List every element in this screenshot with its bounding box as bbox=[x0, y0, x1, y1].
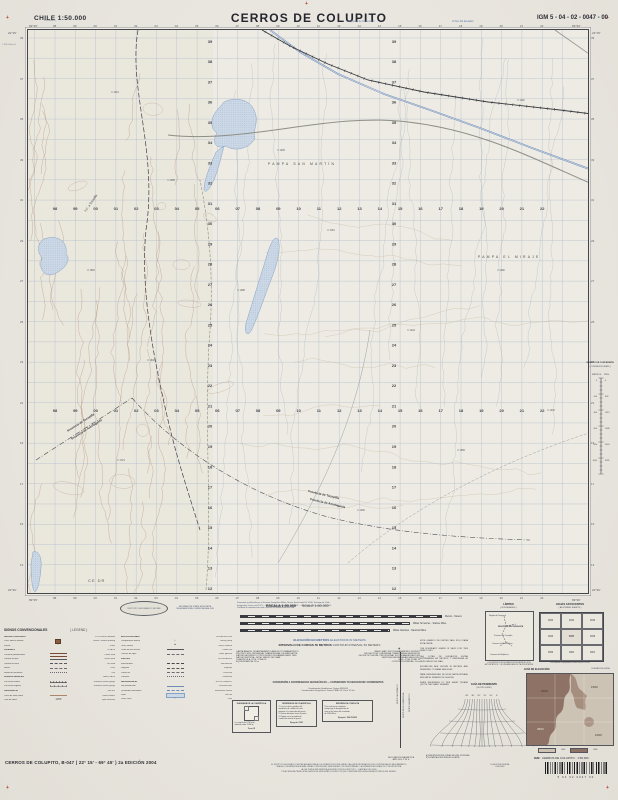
easting-label: 99 bbox=[73, 206, 78, 211]
datum-spanish: CARTA BÁSICA: LEVANTAMIENTO AEROFOTOGRAM… bbox=[236, 651, 325, 663]
northing-label: 34 bbox=[208, 140, 213, 145]
river-symbol bbox=[167, 686, 184, 687]
boundaries-note: LOS LÍMITES QUE FIGURAN EN ESTA CARTA NO… bbox=[483, 662, 535, 666]
margin-northing: 37 bbox=[20, 77, 23, 81]
igm-catalog-line: IGM · CERROS DE COLUPITO · 1:50.000 bbox=[534, 756, 589, 760]
legend-symbol bbox=[48, 695, 68, 696]
adjoining-sheets-grid: 003300340035004600470048005900600061 bbox=[539, 612, 604, 662]
legend-symbol bbox=[48, 681, 68, 683]
barcode-digits: 5 04 02 0047 00 bbox=[545, 776, 607, 779]
margin-easting: 17 bbox=[439, 24, 442, 28]
legend-es-label: Senda de herradura bbox=[4, 672, 48, 674]
legend-symbol: ·1250 bbox=[48, 699, 68, 702]
easting-label: 13 bbox=[357, 206, 362, 211]
margin-easting: 19 bbox=[479, 596, 482, 600]
legend-symbol bbox=[48, 663, 68, 664]
registration-mark: + bbox=[305, 2, 308, 7]
box3-example: Ejemplo: 19K 053653 bbox=[325, 717, 371, 719]
margin-easting: 04 bbox=[175, 596, 178, 600]
margin-easting: 21 bbox=[520, 24, 523, 28]
legend-en-label: Index contour bbox=[68, 695, 115, 697]
margin-easting: 13 bbox=[358, 596, 361, 600]
boundaries-title: LÍMITES bbox=[484, 603, 533, 606]
margin-easting: 06 bbox=[215, 596, 218, 600]
legend-es-label: Vía férrea normal bbox=[4, 681, 48, 683]
margin-easting: 19 bbox=[479, 24, 482, 28]
easting-label: 10 bbox=[296, 408, 301, 413]
margin-northing: 39 bbox=[591, 36, 594, 40]
legend-title: SIGNOS CONVENCIONALES ( LEGEND ) bbox=[4, 628, 232, 632]
easting-label: 00 bbox=[93, 206, 98, 211]
boundary-label: REGIÓN DE ANTOFAGASTA bbox=[498, 626, 523, 628]
legend-en-label: Provincial bbox=[185, 672, 232, 674]
legend-symbol bbox=[48, 668, 68, 669]
corner-lat-br: 22°30' bbox=[592, 588, 600, 592]
adjoining-sheet-cell: 0034 bbox=[561, 613, 582, 629]
margin-easting: 11 bbox=[317, 596, 320, 600]
registration-mark: + bbox=[6, 786, 9, 791]
northing-label: 38 bbox=[392, 59, 397, 64]
elevation-note: ELEVACIÓN EN METROS ELEVATIONS IN METERS bbox=[237, 638, 422, 642]
northing-label: 15 bbox=[392, 525, 397, 530]
ruler-feet-label: 656 bbox=[605, 396, 609, 398]
ruler-meter-label: 400 bbox=[594, 412, 598, 414]
slope-guide-title: GUÍA DE PENDIENTE bbox=[440, 683, 528, 686]
margin-easting: 98 bbox=[53, 24, 56, 28]
northing-label: 30 bbox=[208, 221, 213, 226]
legend-symbol bbox=[165, 676, 185, 677]
elev-swatch-low bbox=[538, 748, 556, 753]
legend-en-label: International bbox=[185, 663, 232, 665]
scale-en: SCALE 1:50.000 bbox=[302, 604, 329, 608]
legend-en-label: ROADS bbox=[68, 649, 115, 651]
easting-label: 20 bbox=[499, 206, 504, 211]
margin-easting: 04 bbox=[175, 24, 178, 28]
northing-label: 27 bbox=[208, 282, 213, 287]
legend-symbol bbox=[48, 685, 68, 687]
northing-label: 20 bbox=[392, 424, 397, 429]
northing-label: 39 bbox=[392, 39, 397, 44]
margin-easting: 07 bbox=[236, 24, 239, 28]
legend-en-label: Track bbox=[68, 667, 115, 669]
b2-symbol bbox=[167, 668, 184, 669]
margin-northing: 21 bbox=[591, 401, 594, 405]
margin-easting: 11 bbox=[317, 24, 320, 28]
igm-logo-text: INSTITUTO GEOGRÁFICO MILITAR bbox=[128, 608, 161, 610]
legend-symbol bbox=[165, 686, 185, 687]
easting-label: 03 bbox=[154, 408, 159, 413]
margin-easting: 21 bbox=[520, 596, 523, 600]
adjoining-sheets-note: Los números corresponden a cartas escala… bbox=[532, 662, 608, 664]
legend-en-label: RELIEF bbox=[68, 690, 115, 692]
legend-symbol bbox=[165, 649, 185, 650]
margin-easting: 02 bbox=[134, 596, 137, 600]
boundaries-title-en: ( BOUNDARIES ) bbox=[484, 607, 533, 609]
northing-label: 25 bbox=[392, 322, 397, 327]
legend-es-label: Huella bbox=[4, 667, 48, 669]
adjoining-sheet-cell: 0046 bbox=[540, 629, 561, 645]
legend-en-label: Well bbox=[185, 698, 232, 700]
slope-guide-title-en: ( SLOPE GUIDE ) bbox=[440, 687, 528, 689]
spot-height: 1402 bbox=[550, 409, 556, 412]
northing-label: 15 bbox=[208, 525, 213, 530]
margin-easting: 00 bbox=[94, 596, 97, 600]
margin-northing: 17 bbox=[20, 482, 23, 486]
easting-label: 13 bbox=[357, 408, 362, 413]
legend-symbol bbox=[165, 654, 185, 655]
ruler-meter-label: 600 bbox=[594, 428, 598, 430]
easting-label: 19 bbox=[479, 206, 484, 211]
northing-label: 23 bbox=[208, 363, 213, 368]
slope-guide-footnotes: A) PENDIENTE ENTRE CURVAS DE NIVEL SUCES… bbox=[426, 755, 538, 759]
margin-northing: 23 bbox=[591, 360, 594, 364]
legend-en-label: Railroad, normal gauge bbox=[68, 681, 115, 683]
ruler-meter-label: 200 bbox=[594, 396, 598, 398]
easting-label: 04 bbox=[175, 206, 180, 211]
sheet-reference-line: CERROS DE COLUPITO, B-047 ( 22° 15' - 69… bbox=[5, 760, 157, 765]
legend-symbol-glyph: ▲ bbox=[174, 644, 177, 647]
corner-lon-br: 69°30' bbox=[572, 598, 580, 602]
spot-height: 1243 bbox=[410, 329, 416, 332]
elevation-guide-map: 2000 1500 1000 2500 bbox=[527, 674, 613, 745]
northing-label: 34 bbox=[392, 140, 397, 145]
northing-label: 26 bbox=[392, 302, 397, 307]
legend-en-label: POPULATED AREAS bbox=[68, 636, 115, 638]
easting-label: 17 bbox=[438, 206, 443, 211]
rail2-symbol bbox=[50, 685, 67, 687]
text-line: IGM 2004 bbox=[478, 766, 522, 768]
conversion-graph-title: GRÁFICO DE CONVERSIÓN bbox=[584, 362, 616, 364]
easting-label: 00 bbox=[93, 408, 98, 413]
margin-northing: 31 bbox=[591, 198, 594, 202]
legend-symbol-glyph: ∷ bbox=[57, 644, 59, 647]
corner-lon-tl: 69°45' bbox=[29, 24, 37, 28]
adjoining-sheet-cell: 0059 bbox=[540, 645, 561, 661]
legend-symbol bbox=[48, 672, 68, 673]
corner-lat-tr: 22°15' bbox=[592, 31, 600, 35]
topographic-map-canvas: 9899000102030405060708091011121314151617… bbox=[28, 30, 588, 593]
margin-easting: 14 bbox=[378, 24, 381, 28]
boundary-label: Provincia de Tocopilla bbox=[494, 635, 512, 637]
margin-northing: 31 bbox=[20, 198, 23, 202]
box1-example: Zona 19 bbox=[235, 728, 269, 730]
northing-label: 19 bbox=[208, 444, 213, 449]
margin-northing: 25 bbox=[591, 320, 594, 324]
legend-es-label: Carretera pavimentada bbox=[4, 654, 48, 656]
b3-symbol bbox=[167, 672, 184, 673]
north-star-icon: ✶ bbox=[398, 646, 401, 651]
dash-symbol bbox=[50, 668, 67, 669]
ruler-header-right: PIES bbox=[604, 374, 610, 376]
scale-statement: ESCALA 1:50.000SCALE 1:50.000 bbox=[266, 604, 329, 608]
grid-north-label: NORTE DE LA CUADRÍCULA bbox=[403, 693, 405, 718]
scale-bar-row: Metros · Meters bbox=[240, 613, 490, 620]
legend-panel: SIGNOS CONVENCIONALES ( LEGEND ) ÁREAS P… bbox=[4, 628, 232, 702]
legend-es-label: Camino de tierra bbox=[4, 663, 48, 665]
full-easting-ref: 398.000m E bbox=[44, 20, 56, 22]
contour-interval-en: CONTOUR INTERVAL 50 METERS bbox=[333, 643, 381, 647]
map-sheet: + + + + + CHILE 1:50.000 CERROS DE COLUP… bbox=[0, 0, 618, 800]
northing-label: 35 bbox=[392, 120, 397, 125]
place-label-pampa-el-miraje: PAMPA EL MIRAJE bbox=[478, 255, 541, 259]
northing-label: 12 bbox=[392, 586, 397, 591]
margin-northing: 27 bbox=[591, 279, 594, 283]
conversion-graph-subtitle: ( CONVERSION GRAPH ) bbox=[584, 366, 616, 368]
margin-easting: 16 bbox=[418, 596, 421, 600]
legend-en-label: Mining camp bbox=[185, 640, 232, 642]
margin-easting: 10 bbox=[297, 596, 300, 600]
text-line: de 100.000 m. bbox=[325, 713, 371, 715]
northing-label: 17 bbox=[208, 485, 213, 490]
slope-degree-label: 45° bbox=[465, 695, 468, 697]
scale-bars: Metros · MetersMillas Terrestres · Statu… bbox=[240, 613, 490, 634]
magnetic-north-label: NORTE MAGNÉTICO bbox=[409, 693, 411, 712]
scale-bar-row: Millas Terrestres · Statute Miles bbox=[240, 620, 490, 627]
margin-northing: 35 bbox=[20, 117, 23, 121]
margin-easting: 05 bbox=[195, 596, 198, 600]
info-note: INFORMACIÓN SOBRE ESTA CARTASE AGRADECER… bbox=[160, 606, 230, 611]
legend-symbol: ∷ bbox=[48, 644, 68, 647]
legend-symbol-glyph: ·1250 bbox=[55, 699, 62, 702]
legend-es-label: Línea de alta tensión bbox=[121, 649, 165, 651]
margin-easting: 18 bbox=[459, 24, 462, 28]
legend-es-label: Salar bbox=[121, 694, 165, 696]
northing-label: 21 bbox=[392, 403, 397, 408]
elev-swatch-low-label: 1040 bbox=[561, 749, 565, 751]
legend-en-label: House, isolated building bbox=[68, 640, 115, 642]
adjoining-sheet-cell: 0061 bbox=[582, 645, 603, 661]
barcode bbox=[545, 762, 607, 774]
legend-symbol bbox=[165, 690, 185, 691]
northing-label: 29 bbox=[392, 241, 397, 246]
legend-es-label: LÍMITES bbox=[121, 658, 165, 660]
northing-label: 32 bbox=[208, 181, 213, 186]
margin-northing: 21 bbox=[20, 401, 23, 405]
b1-symbol bbox=[167, 663, 184, 664]
spot-height: 1199 bbox=[500, 269, 506, 272]
legend-es-label: Comunal bbox=[121, 676, 165, 678]
legend-es-label: Regional bbox=[121, 667, 165, 669]
svg-text:2500: 2500 bbox=[537, 727, 544, 731]
margin-note-left: Al Oeste de Greenwich bbox=[348, 20, 375, 23]
northing-label: 18 bbox=[208, 464, 213, 469]
easting-label: 15 bbox=[398, 206, 403, 211]
spot-height: 1154 bbox=[330, 229, 336, 232]
easting-label: 08 bbox=[256, 206, 261, 211]
legend-es-label: OROGRAFÍA bbox=[4, 690, 48, 692]
legend-es-label: Quebrada intermitente bbox=[121, 690, 165, 692]
margin-easting: 15 bbox=[398, 24, 401, 28]
slope-degree-label: 20° bbox=[477, 695, 480, 697]
edition-note: 2a EDICIÓN DIGITALIGM 2004 bbox=[478, 764, 522, 768]
boundary-label: Comuna de Mejillones bbox=[490, 654, 509, 656]
legend-symbol-glyph: ▪ bbox=[175, 640, 176, 643]
northing-label: 16 bbox=[392, 505, 397, 510]
ruler-feet-label: 1968 bbox=[605, 428, 610, 430]
legend-en-label: RAILROADS bbox=[68, 676, 115, 678]
margin-northing: 17 bbox=[591, 482, 594, 486]
elevation-guide-legend: 1040 3065 bbox=[538, 748, 597, 753]
northing-label: 36 bbox=[392, 100, 397, 105]
legend-en-label: Perennial river bbox=[185, 685, 232, 687]
conversion-ruler: METROSPIES002006564001312600196880026241… bbox=[588, 370, 614, 478]
margin-easting: 12 bbox=[337, 596, 340, 600]
text-line: indicada cada 1.000 m bbox=[235, 724, 269, 726]
north-line bbox=[400, 652, 401, 748]
legend-es-label: Cañería de agua bbox=[121, 653, 165, 655]
legend-en-label: Gravel road bbox=[68, 658, 115, 660]
adjoining-sheet-cell: 0048 bbox=[582, 629, 603, 645]
igm-catalog-rest: · CERROS DE COLUPITO · 1:50.000 bbox=[539, 756, 588, 760]
northing-label: 24 bbox=[208, 343, 213, 348]
northing-label: 23 bbox=[392, 363, 397, 368]
elev-guide-label: 2000 bbox=[541, 689, 548, 693]
legend-es-label: Provincial bbox=[121, 672, 165, 674]
northing-label: 13 bbox=[208, 566, 213, 571]
b4-symbol bbox=[167, 676, 184, 677]
easting-label: 17 bbox=[438, 408, 443, 413]
margin-northing: 23 bbox=[20, 360, 23, 364]
legend-es-label: CAMINOS bbox=[4, 649, 48, 651]
rail-symbol bbox=[50, 681, 67, 683]
legend-es-label: Camino de ripio bbox=[4, 658, 48, 660]
legend-en-label: Power line bbox=[185, 649, 232, 651]
easting-label: 09 bbox=[276, 408, 281, 413]
margin-northing: 33 bbox=[591, 158, 594, 162]
margin-northing: 19 bbox=[20, 441, 23, 445]
contour-symbol bbox=[50, 695, 67, 696]
b3-symbol bbox=[167, 654, 184, 655]
margin-easting: 06 bbox=[215, 24, 218, 28]
spot-height: 1235 bbox=[280, 149, 286, 152]
ruler-header-left: METROS bbox=[592, 374, 602, 376]
margin-easting: 01 bbox=[114, 596, 117, 600]
northing-label: 16 bbox=[208, 505, 213, 510]
map-body: 9899000102030405060708091011121314151617… bbox=[28, 30, 588, 593]
box1-title: DIAGRAMA DE LA CUADRÍCULA bbox=[235, 703, 269, 705]
easting-label: 02 bbox=[134, 408, 139, 413]
elevation-guide-title-en: ELEVATION GUIDE bbox=[591, 668, 610, 670]
user-feedback-note: EL INSTITUTO GEOGRÁFICO MILITAR AGRADECE… bbox=[246, 764, 432, 774]
easting-label: 18 bbox=[459, 408, 464, 413]
slope-degree-label: 10° bbox=[489, 695, 492, 697]
road2-symbol bbox=[50, 653, 67, 656]
road1-symbol bbox=[50, 659, 67, 660]
contour-interval-es: INTERVALO DE CURVAS 50 METROS bbox=[279, 643, 332, 647]
registration-mark: + bbox=[606, 786, 609, 791]
margin-easting: 09 bbox=[276, 24, 279, 28]
boundary-label: Comuna de María Elena bbox=[492, 643, 513, 645]
margin-easting: 22 bbox=[540, 24, 543, 28]
legend-en-label: Dirt road bbox=[68, 663, 115, 665]
spot-height: 1640 bbox=[150, 359, 156, 362]
scale-bar-label: Millas Náuticas · Nautical Miles bbox=[393, 629, 426, 632]
elev-swatch-high-label: 3065 bbox=[593, 749, 597, 751]
spot-height: 1562 bbox=[90, 269, 96, 272]
box2-title: REFERENCIA DE CUADRÍCULA bbox=[279, 703, 315, 705]
slope-degree-label: 15° bbox=[483, 695, 486, 697]
box3-title: REFERENCIA COMPLETA bbox=[325, 703, 371, 705]
margin-northing: 13 bbox=[591, 563, 594, 567]
magnetic-declination-diagram: ✶ NORTE GEOGRÁFICO NORTE DE LA CUADRÍCUL… bbox=[384, 646, 418, 756]
easting-label: 15 bbox=[398, 408, 403, 413]
legend-en-label: Water pipeline bbox=[185, 653, 232, 655]
margin-northing: 13 bbox=[20, 563, 23, 567]
dots-symbol bbox=[50, 672, 67, 673]
easting-label: 02 bbox=[134, 206, 139, 211]
marginal-note: LAS COTAS DE ELEVACIÓN ESTÁN EXPRESADAS … bbox=[420, 656, 468, 664]
northing-label: 20 bbox=[208, 424, 213, 429]
ruler-meter-label: 0 bbox=[596, 380, 598, 382]
margin-easting: 98 bbox=[53, 596, 56, 600]
easting-label: 12 bbox=[337, 206, 342, 211]
margin-northing: 25 bbox=[20, 320, 23, 324]
ruler-meter-label: 1000 bbox=[593, 460, 598, 462]
legend-es-label: Vía férrea angosta bbox=[4, 685, 48, 687]
easting-label: 14 bbox=[378, 408, 383, 413]
spot-height: 1485 bbox=[170, 179, 176, 182]
margin-easting: 14 bbox=[378, 596, 381, 600]
legend-es-label: Ruinas bbox=[4, 645, 48, 647]
legend-en-label: Ruins bbox=[68, 645, 115, 647]
margin-easting: 00 bbox=[94, 24, 97, 28]
easting-label: 06 bbox=[215, 408, 220, 413]
legend-en-label: Railroad, narrow gauge bbox=[68, 685, 115, 687]
northing-label: 30 bbox=[392, 221, 397, 226]
legend-es-label: Torre, antena bbox=[121, 645, 165, 647]
spot-height: 1450 bbox=[360, 509, 366, 512]
margin-northing: 37 bbox=[591, 77, 594, 81]
sheet-code: IGM 5 - 04 - 02 - 0047 - 00 bbox=[537, 15, 608, 21]
svg-text:1000: 1000 bbox=[595, 733, 602, 737]
box2-example: Ejemplo: 0536 bbox=[279, 722, 315, 724]
full-northing-ref: 7.539.000m N bbox=[2, 44, 16, 46]
scale-es: ESCALA 1:50.000 bbox=[266, 604, 296, 608]
adjoining-sheet-cell: 0047 bbox=[561, 629, 582, 645]
northing-label: 14 bbox=[208, 545, 213, 550]
legend-en-label: Communal bbox=[185, 676, 232, 678]
box3-lines: Para referencia completaanteponga la des… bbox=[325, 706, 371, 716]
legend-symbol: ▪ bbox=[165, 640, 185, 643]
margin-northing: 39 bbox=[20, 36, 23, 40]
full-reference-box: REFERENCIA COMPLETA Para referencia comp… bbox=[322, 700, 373, 722]
easting-label: 10 bbox=[296, 206, 301, 211]
easting-label: 05 bbox=[195, 408, 200, 413]
elevation-note-en: ELEVATIONS IN METERS bbox=[330, 638, 366, 642]
northing-label: 29 bbox=[208, 241, 213, 246]
margin-easting: 18 bbox=[459, 596, 462, 600]
slope-degree-label: 5° bbox=[496, 695, 498, 697]
spot-height: 1356 bbox=[460, 449, 466, 452]
easting-label: 09 bbox=[276, 206, 281, 211]
legend-symbol: ▲ bbox=[165, 644, 185, 647]
easting-label: 12 bbox=[337, 408, 342, 413]
margin-northing: 29 bbox=[20, 239, 23, 243]
true-north-label: NORTE GEOGRÁFICO bbox=[397, 684, 399, 704]
legend-es-label: Pozo, noria bbox=[121, 698, 165, 700]
northing-label: 38 bbox=[208, 59, 213, 64]
northing-label: 31 bbox=[208, 201, 213, 206]
easting-label: 20 bbox=[499, 408, 504, 413]
corner-lon-tr: 69°30' bbox=[572, 24, 580, 28]
easting-label: 06 bbox=[215, 206, 220, 211]
slope-guide-fan: 45°30°20°15°10°5° bbox=[430, 691, 534, 753]
margin-northing: 33 bbox=[20, 158, 23, 162]
legend-en-label: Intermittent stream bbox=[185, 690, 232, 692]
easting-label: 22 bbox=[540, 206, 545, 211]
legend-title-en: ( LEGEND ) bbox=[70, 628, 87, 632]
ruler-feet-label: 0 bbox=[605, 380, 607, 382]
